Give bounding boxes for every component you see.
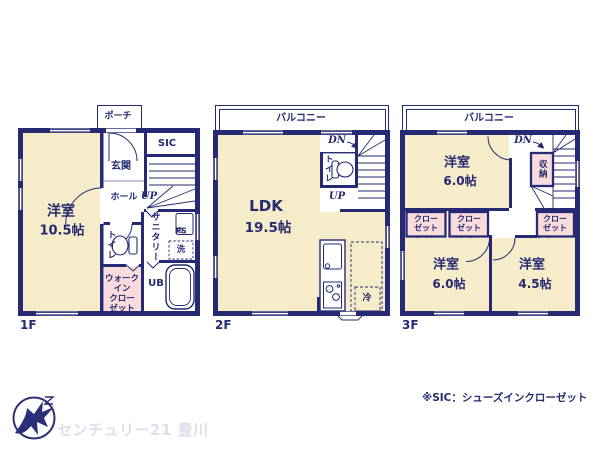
floor-label-3f: 3F — [402, 318, 419, 332]
label-room-bl-3f-size: 6.0帖 — [432, 277, 465, 291]
label-room-br-3f-size: 4.5帖 — [518, 277, 551, 291]
label-room-br-3f: 洋室 — [519, 257, 545, 272]
brand-bird-logo — [10, 392, 58, 444]
label-hall: ホール — [110, 193, 137, 204]
label-closet-a: クロー ゼット — [414, 215, 438, 234]
label-fridge: 冷 — [362, 294, 371, 305]
label-sic: SIC — [158, 138, 176, 150]
label-up-1f: UP — [141, 191, 157, 203]
label-room-top-3f-size: 6.0帖 — [443, 174, 476, 188]
label-toilet-2f: トイレ — [324, 155, 333, 184]
label-ldk-size: 19.5帖 — [245, 221, 292, 237]
outline-2f — [213, 130, 390, 316]
label-room-top-3f: 洋室 — [444, 155, 470, 170]
label-laundry: 洗 — [177, 245, 186, 255]
floor-label-2f: 2F — [215, 318, 232, 332]
label-storage-3f: 収納 — [538, 160, 547, 179]
label-closet-c: クロー ゼット — [543, 215, 567, 234]
label-sanitary: サニタリー — [150, 212, 159, 262]
label-ub: UB — [148, 278, 164, 290]
label-genkan: 玄関 — [111, 161, 131, 173]
label-toilet-1f: トイレ — [106, 230, 115, 260]
label-dn-3f: DN — [514, 135, 532, 147]
label-room-bl-3f: 洋室 — [433, 257, 459, 272]
label-ldk: LDK — [249, 198, 283, 216]
label-room-1f: 洋室 — [47, 204, 75, 221]
label-balcony-3f: バルコニー — [464, 113, 514, 125]
label-ps: PS — [175, 226, 187, 235]
label-up-2f: UP — [329, 191, 345, 203]
floor-label-1f: 1F — [20, 318, 37, 332]
label-porch: ポーチ — [104, 112, 131, 123]
label-wic: ウォーク イン クロー ゼット — [105, 274, 139, 314]
sic-note: ※SIC：シューズインクローゼット — [422, 390, 587, 405]
label-room-1f-size: 10.5帖 — [39, 223, 84, 238]
bird-silhouette — [15, 401, 54, 435]
label-balcony-2f: バルコニー — [276, 113, 326, 125]
label-closet-b: クロー ゼット — [457, 215, 481, 234]
label-dn-2f: DN — [328, 135, 346, 147]
brand-name: センチュリー21 豊川 — [57, 419, 209, 440]
floorplan-canvas: ポーチ SIC 玄関 ホール UP 洋室 10.5帖 サニタリー PS 洗 トイ… — [0, 0, 600, 450]
